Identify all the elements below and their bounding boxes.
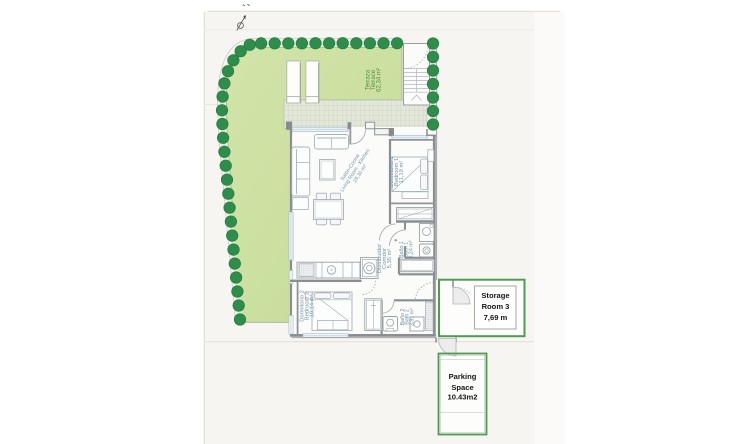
svg-text:Storage: Storage	[481, 291, 509, 300]
svg-text:3,91 m²: 3,91 m²	[409, 308, 415, 326]
svg-text:Parking: Parking	[449, 372, 477, 381]
svg-text:Space: Space	[451, 383, 473, 392]
svg-text:10.43m2: 10.43m2	[448, 393, 478, 402]
svg-text:10,14 m²: 10,14 m²	[310, 294, 316, 317]
svg-text:4,24 m²: 4,24 m²	[408, 240, 414, 258]
svg-text:11,19 m²: 11,19 m²	[399, 161, 405, 184]
svg-text:5,35 m²: 5,35 m²	[387, 249, 393, 269]
svg-text:7,69 m: 7,69 m	[484, 313, 508, 322]
svg-text:62,34 m²: 62,34 m²	[375, 68, 382, 92]
svg-text:Room 3: Room 3	[482, 302, 510, 311]
